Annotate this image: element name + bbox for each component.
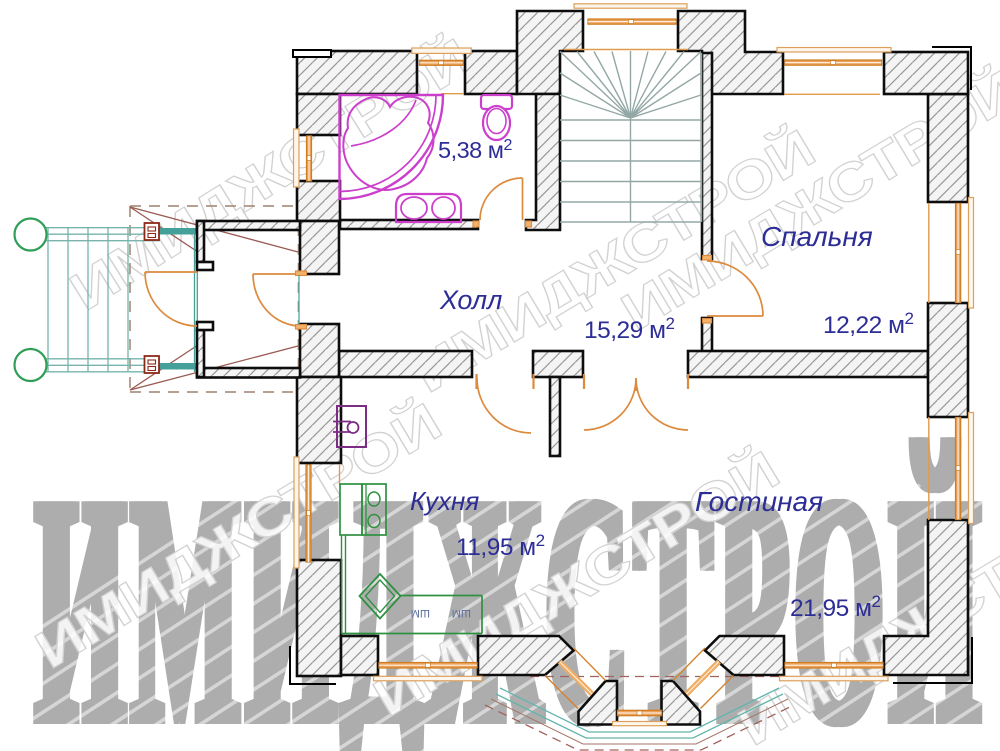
svg-text:Спальня: Спальня — [761, 221, 873, 252]
svg-text:5,38 м2: 5,38 м2 — [438, 137, 512, 163]
svg-text:Кухня: Кухня — [410, 486, 479, 516]
svg-text:12,22 м2: 12,22 м2 — [823, 309, 913, 339]
svg-text:ШМ: ШМ — [411, 607, 430, 619]
svg-text:15,29 м2: 15,29 м2 — [584, 314, 674, 344]
svg-text:11,95 м2: 11,95 м2 — [456, 531, 545, 561]
svg-text:ШМ: ШМ — [452, 607, 471, 619]
svg-text:Холл: Холл — [439, 285, 502, 315]
svg-text:21,95 м2: 21,95 м2 — [790, 592, 880, 622]
svg-text:Гостиная: Гостиная — [695, 486, 823, 517]
